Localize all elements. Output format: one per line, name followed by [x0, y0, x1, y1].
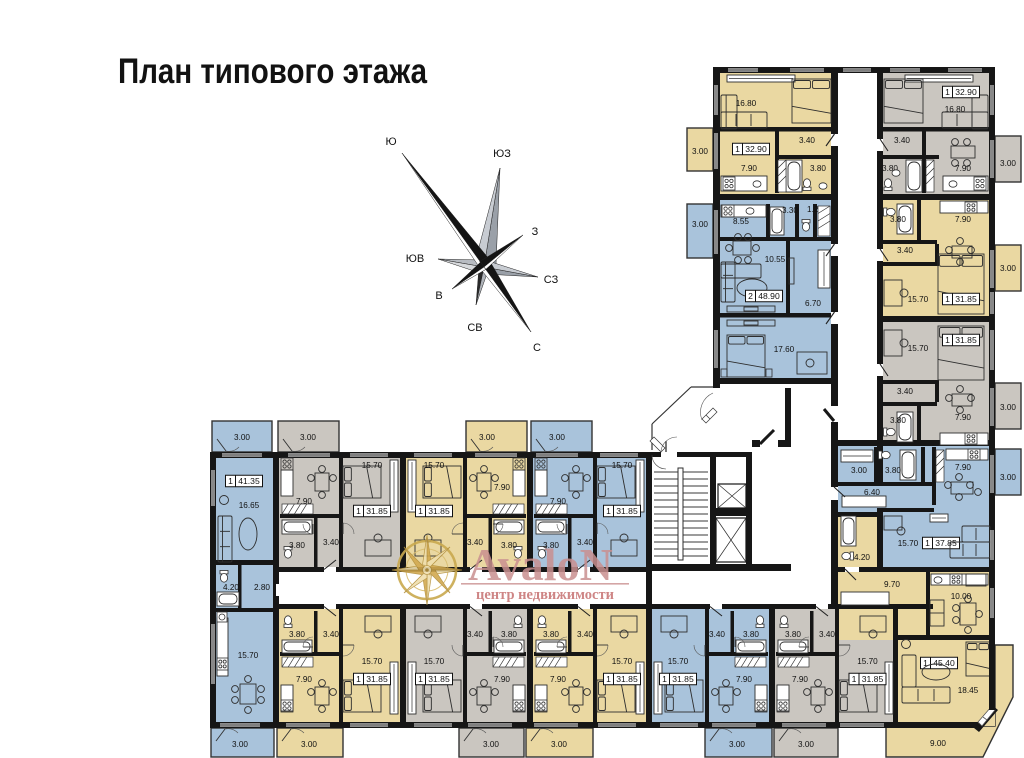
svg-text:31.85: 31.85 — [428, 506, 450, 516]
svg-text:3.00: 3.00 — [1000, 264, 1016, 273]
svg-text:31.85: 31.85 — [862, 674, 884, 684]
svg-text:1: 1 — [945, 294, 950, 304]
svg-text:ЮВ: ЮВ — [406, 253, 424, 265]
svg-text:7.90: 7.90 — [741, 164, 757, 173]
svg-text:3.00: 3.00 — [301, 740, 317, 749]
svg-text:31.85: 31.85 — [616, 506, 638, 516]
svg-text:7.90: 7.90 — [955, 413, 971, 422]
svg-text:31.85: 31.85 — [955, 335, 977, 345]
svg-text:15.70: 15.70 — [238, 651, 259, 660]
svg-text:3.40: 3.40 — [897, 387, 913, 396]
svg-text:1: 1 — [356, 674, 361, 684]
svg-text:15.70: 15.70 — [612, 461, 633, 470]
svg-text:31.85: 31.85 — [616, 674, 638, 684]
svg-text:3.80: 3.80 — [743, 630, 759, 639]
svg-text:3.40: 3.40 — [323, 630, 339, 639]
svg-text:1: 1 — [925, 538, 930, 548]
svg-text:1: 1 — [945, 335, 950, 345]
svg-text:15.70: 15.70 — [362, 657, 383, 666]
svg-text:7.90: 7.90 — [296, 675, 312, 684]
svg-text:2: 2 — [748, 291, 753, 301]
svg-text:9.00: 9.00 — [930, 739, 946, 748]
svg-text:3.00: 3.00 — [798, 740, 814, 749]
svg-text:3.00: 3.00 — [692, 220, 708, 229]
svg-text:3.00: 3.00 — [232, 740, 248, 749]
svg-text:41.35: 41.35 — [238, 476, 260, 486]
svg-text:4.20: 4.20 — [854, 553, 870, 562]
svg-text:15.70: 15.70 — [612, 657, 633, 666]
svg-text:3.40: 3.40 — [894, 136, 910, 145]
svg-text:AvaloN: AvaloN — [468, 539, 613, 590]
svg-text:15.70: 15.70 — [908, 344, 929, 353]
svg-text:7.90: 7.90 — [494, 483, 510, 492]
svg-text:3.00: 3.00 — [300, 433, 316, 442]
svg-text:1: 1 — [418, 506, 423, 516]
svg-text:4.20: 4.20 — [223, 583, 239, 592]
svg-text:3.00: 3.00 — [483, 740, 499, 749]
svg-text:3.30: 3.30 — [782, 206, 798, 215]
svg-text:центр недвижимости: центр недвижимости — [476, 587, 614, 603]
svg-text:1: 1 — [228, 476, 233, 486]
svg-text:17.60: 17.60 — [774, 345, 795, 354]
svg-text:3.40: 3.40 — [709, 630, 725, 639]
svg-text:1: 1 — [606, 506, 611, 516]
svg-text:3.80: 3.80 — [501, 630, 517, 639]
svg-text:9.70: 9.70 — [884, 580, 900, 589]
svg-text:3.80: 3.80 — [810, 164, 826, 173]
svg-text:1: 1 — [735, 144, 740, 154]
svg-text:37.85: 37.85 — [935, 538, 957, 548]
svg-text:45.40: 45.40 — [933, 658, 955, 668]
svg-text:15.70: 15.70 — [668, 657, 689, 666]
svg-text:План типового этажа: План типового этажа — [118, 52, 427, 91]
svg-text:7.90: 7.90 — [955, 215, 971, 224]
svg-text:16.80: 16.80 — [736, 99, 757, 108]
svg-text:3.00: 3.00 — [1000, 159, 1016, 168]
svg-text:31.85: 31.85 — [955, 294, 977, 304]
svg-text:15.70: 15.70 — [424, 461, 445, 470]
svg-text:Ю: Ю — [385, 136, 396, 148]
svg-text:3.00: 3.00 — [692, 147, 708, 156]
svg-text:1: 1 — [852, 674, 857, 684]
svg-text:32.90: 32.90 — [955, 87, 977, 97]
svg-text:3.40: 3.40 — [897, 246, 913, 255]
svg-text:15.70: 15.70 — [857, 657, 878, 666]
svg-text:3.80: 3.80 — [785, 630, 801, 639]
svg-text:3.00: 3.00 — [1000, 473, 1016, 482]
svg-text:7.90: 7.90 — [550, 675, 566, 684]
svg-text:7.90: 7.90 — [296, 497, 312, 506]
svg-text:15.70: 15.70 — [424, 657, 445, 666]
svg-text:3.00: 3.00 — [234, 433, 250, 442]
svg-text:7.90: 7.90 — [955, 463, 971, 472]
svg-text:31.85: 31.85 — [672, 674, 694, 684]
svg-text:2.80: 2.80 — [254, 583, 270, 592]
svg-text:3.00: 3.00 — [551, 740, 567, 749]
svg-text:18.45: 18.45 — [958, 686, 979, 695]
svg-text:1: 1 — [418, 674, 423, 684]
svg-text:48.90: 48.90 — [758, 291, 780, 301]
svg-text:3.00: 3.00 — [1000, 403, 1016, 412]
svg-text:3.40: 3.40 — [323, 538, 339, 547]
svg-text:1: 1 — [662, 674, 667, 684]
svg-text:3.80: 3.80 — [890, 215, 906, 224]
svg-text:15.70: 15.70 — [898, 539, 919, 548]
svg-text:10.00: 10.00 — [951, 592, 972, 601]
svg-text:3.80: 3.80 — [890, 416, 906, 425]
svg-text:3.00: 3.00 — [549, 433, 565, 442]
svg-text:3.80: 3.80 — [289, 541, 305, 550]
svg-text:7.90: 7.90 — [550, 497, 566, 506]
svg-text:3.80: 3.80 — [885, 466, 901, 475]
svg-text:6.70: 6.70 — [805, 299, 821, 308]
svg-text:31.85: 31.85 — [366, 506, 388, 516]
svg-text:В: В — [435, 290, 442, 302]
svg-text:31.85: 31.85 — [366, 674, 388, 684]
svg-text:15.70: 15.70 — [362, 461, 383, 470]
svg-text:3.40: 3.40 — [577, 630, 593, 639]
svg-text:3.40: 3.40 — [799, 136, 815, 145]
svg-text:7.90: 7.90 — [736, 675, 752, 684]
svg-text:16.65: 16.65 — [239, 501, 260, 510]
svg-text:1: 1 — [945, 87, 950, 97]
svg-text:ЮЗ: ЮЗ — [493, 148, 511, 160]
svg-text:3.40: 3.40 — [467, 630, 483, 639]
svg-text:7.90: 7.90 — [494, 675, 510, 684]
svg-text:3.80: 3.80 — [543, 630, 559, 639]
svg-text:3.00: 3.00 — [729, 740, 745, 749]
svg-text:СЗ: СЗ — [544, 274, 559, 286]
svg-text:3.00: 3.00 — [851, 466, 867, 475]
svg-text:1: 1 — [356, 506, 361, 516]
svg-text:1: 1 — [606, 674, 611, 684]
svg-text:СВ: СВ — [467, 322, 482, 334]
svg-text:16.80: 16.80 — [945, 105, 966, 114]
svg-text:10.55: 10.55 — [765, 255, 786, 264]
svg-text:3.80: 3.80 — [289, 630, 305, 639]
svg-text:С: С — [533, 342, 541, 354]
svg-text:15.70: 15.70 — [908, 295, 929, 304]
svg-text:З: З — [532, 226, 539, 238]
svg-text:8.55: 8.55 — [733, 217, 749, 226]
svg-text:3.40: 3.40 — [819, 630, 835, 639]
svg-text:31.85: 31.85 — [428, 674, 450, 684]
svg-text:7.90: 7.90 — [792, 675, 808, 684]
svg-text:3.00: 3.00 — [479, 433, 495, 442]
svg-text:32.90: 32.90 — [745, 144, 767, 154]
